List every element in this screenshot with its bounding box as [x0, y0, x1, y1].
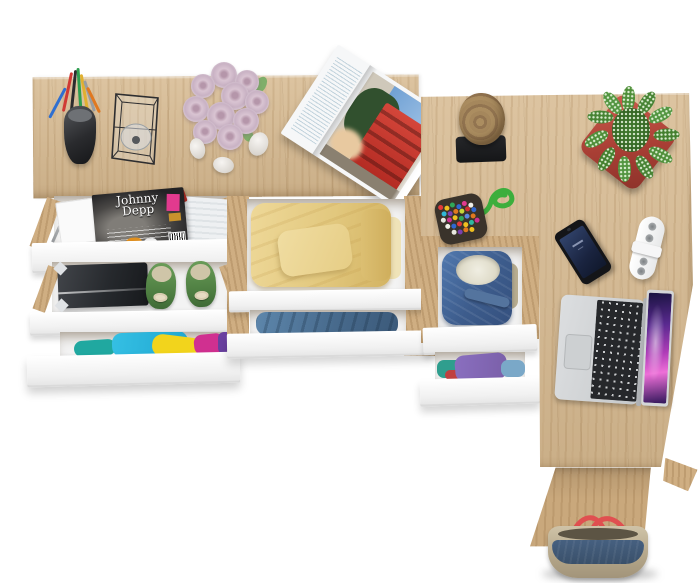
right-drawer-cavity-1	[438, 247, 522, 329]
pencil-cup	[56, 68, 102, 170]
cover-gold-badge	[169, 212, 182, 221]
pompom-dots	[438, 205, 444, 211]
yellow-sweater-cuff	[361, 209, 391, 281]
rose	[183, 96, 209, 122]
box-highlight-stripe	[58, 288, 148, 295]
cover-pink-badge	[166, 194, 179, 211]
plant-foliage	[584, 84, 678, 184]
right-unit-left-column	[421, 229, 439, 343]
succulent-leaf	[618, 156, 632, 182]
pompom-felt-pad	[433, 192, 490, 247]
shoe-insole	[190, 264, 211, 281]
folded-yellow-clothes	[249, 201, 403, 290]
laptop	[550, 282, 676, 412]
left-drawer-front-3	[27, 352, 241, 388]
stool-log-top	[459, 93, 505, 145]
wire-basket	[110, 92, 164, 168]
pencil-cup-rim	[68, 109, 92, 122]
log-stool	[454, 90, 508, 164]
tote-bag	[546, 500, 650, 582]
cloth-lightblue-2	[501, 360, 525, 377]
middle-unit-left-column	[227, 196, 249, 346]
middle-drawer-cavity-1	[247, 199, 405, 292]
fleece-lining	[456, 255, 500, 285]
phone-text-glyph	[578, 246, 584, 250]
laptop-screen	[641, 289, 674, 406]
laptop-wallpaper	[643, 293, 672, 404]
succulent-leaf	[594, 144, 618, 173]
pencil-cup-body	[64, 106, 96, 164]
storage-box	[57, 262, 148, 308]
right-drawer-front-1	[423, 324, 538, 355]
laptop-trackpad	[563, 334, 592, 371]
denim-jacket	[440, 249, 520, 327]
flat-shoe-right	[185, 260, 217, 308]
succulent-leaf	[653, 128, 679, 142]
rose	[191, 74, 215, 98]
organizer-hole	[639, 257, 649, 267]
flat-shoe-left	[145, 262, 177, 310]
organizer-clip-band	[631, 240, 663, 258]
bag-interior-shadow	[558, 528, 638, 540]
bag-navy-band	[552, 540, 644, 564]
rose	[217, 124, 243, 150]
magazine-title: Johnny Depp	[106, 191, 170, 219]
shoe-insole	[151, 266, 172, 283]
right-desk-side-edge	[659, 458, 698, 492]
succulent-plant	[584, 84, 678, 188]
shoe-bow	[153, 293, 167, 303]
middle-drawer-front-1	[229, 289, 433, 313]
middle-drawer-front-2	[227, 330, 435, 359]
shoe-bow	[194, 291, 208, 301]
organizer-hole	[645, 233, 655, 243]
right-unit-right-column	[520, 229, 539, 339]
laptop-keyboard	[590, 300, 643, 402]
product-render-scene: Johnny Depp	[0, 0, 700, 583]
right-drawer-front-2	[420, 376, 541, 406]
pompom-keychain	[437, 178, 523, 244]
organizer-hole	[647, 222, 657, 232]
succulent-leaf	[587, 110, 613, 124]
green-flats	[144, 261, 222, 311]
succulent-center	[612, 108, 650, 152]
organizer-hole	[636, 266, 646, 276]
